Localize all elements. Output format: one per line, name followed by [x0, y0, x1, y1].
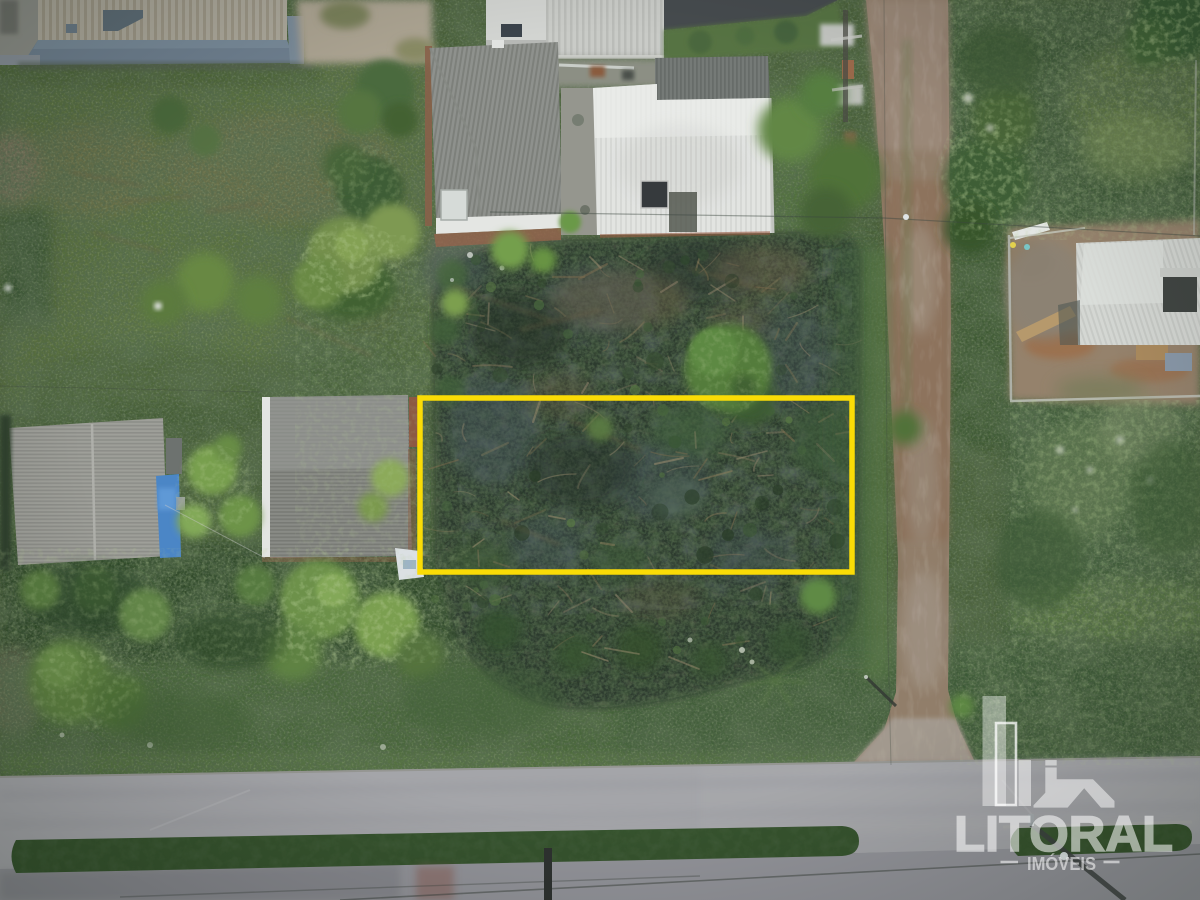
svg-text:IMÓVEIS: IMÓVEIS: [1027, 853, 1096, 874]
